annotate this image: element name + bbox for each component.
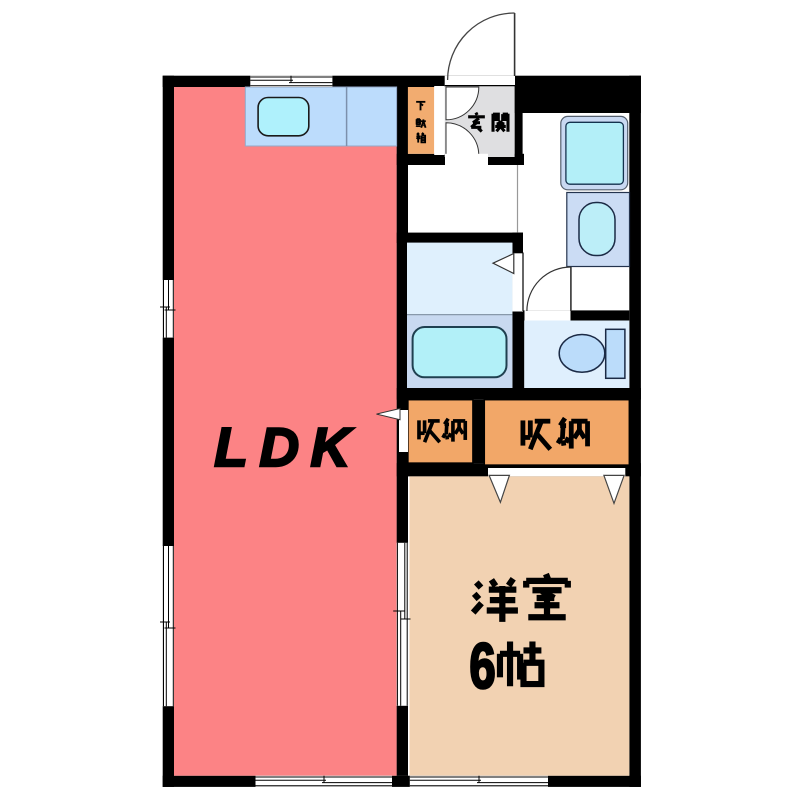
svg-text:6: 6 — [469, 630, 495, 702]
svg-text:LDK: LDK — [214, 416, 362, 478]
